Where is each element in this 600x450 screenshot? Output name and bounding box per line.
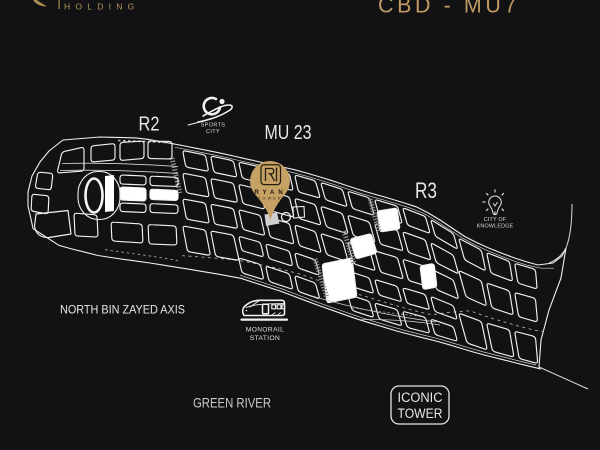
svg-text:SPORTS: SPORTS: [201, 123, 226, 129]
svg-text:ICONIC: ICONIC: [398, 390, 443, 405]
svg-text:R3: R3: [415, 178, 437, 203]
svg-text:MONORAIL: MONORAIL: [246, 327, 284, 334]
svg-text:TOWER: TOWER: [398, 406, 443, 421]
svg-text:NORTH BIN ZAYED AXIS: NORTH BIN ZAYED AXIS: [60, 303, 185, 317]
svg-text:MU 23: MU 23: [265, 122, 312, 144]
svg-text:CITY OF: CITY OF: [484, 217, 507, 223]
svg-text:STATION: STATION: [250, 335, 280, 342]
svg-text:R2: R2: [139, 114, 160, 136]
svg-text:GREEN RIVER: GREEN RIVER: [193, 395, 271, 411]
svg-text:TOWER: TOWER: [258, 196, 283, 200]
svg-text:CITY: CITY: [206, 129, 220, 135]
svg-text:CBD - MU7: CBD - MU7: [378, 0, 520, 18]
svg-text:HOLDING: HOLDING: [64, 2, 140, 12]
svg-text:RYAN: RYAN: [254, 189, 286, 196]
svg-text:KNOWLEDGE: KNOWLEDGE: [477, 224, 514, 230]
